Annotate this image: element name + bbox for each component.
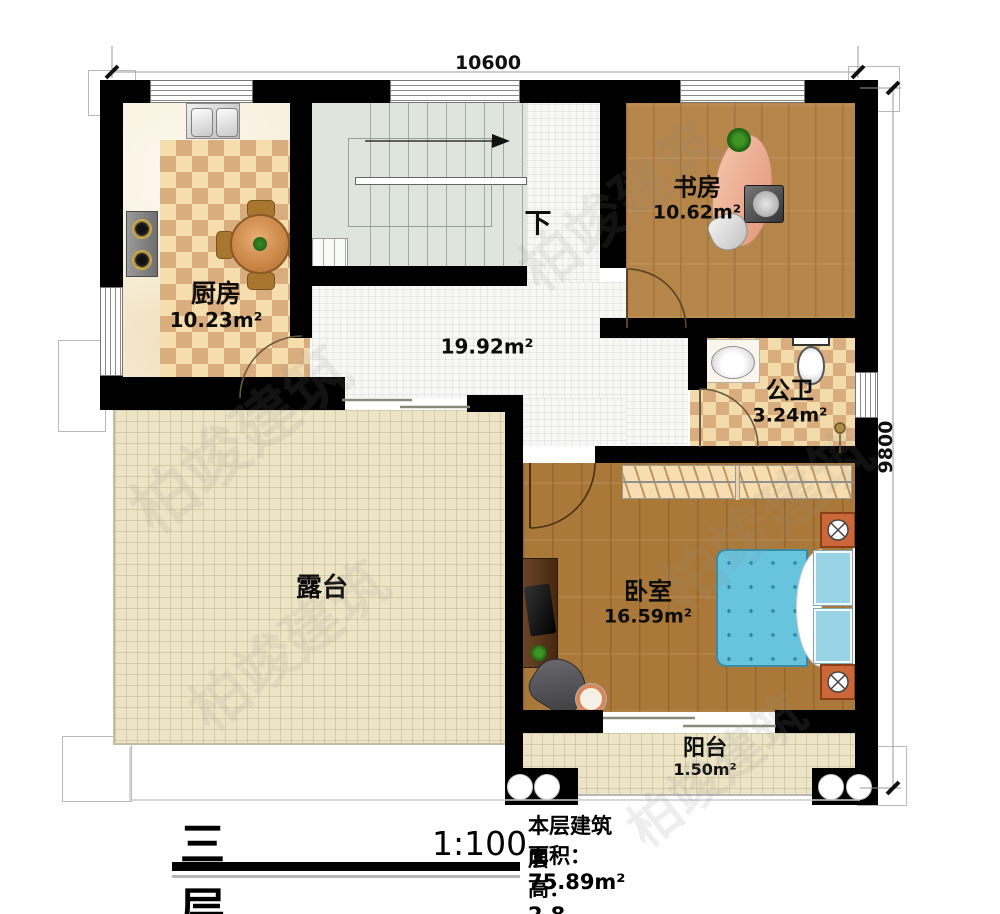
column-icon	[846, 774, 872, 800]
room-area: 16.59m²	[604, 606, 692, 628]
kitchen-label: 厨房 10.23m²	[170, 280, 263, 332]
hall-area-label: 19.92m²	[441, 336, 534, 359]
plant-icon	[253, 237, 267, 251]
burner	[132, 250, 152, 270]
stove-icon	[126, 211, 158, 277]
wall	[100, 80, 123, 287]
pillow	[814, 551, 852, 605]
sink-basin	[191, 108, 213, 137]
bathroom-sink-icon	[702, 339, 760, 383]
wall	[505, 710, 603, 733]
mattress	[716, 549, 808, 667]
dimension-ext-box	[62, 736, 132, 802]
room-area: 10.23m²	[170, 309, 263, 332]
kitchen-sink-icon	[186, 103, 240, 139]
table-top	[230, 214, 290, 274]
burner	[132, 219, 152, 239]
wall	[600, 80, 626, 268]
nightstand-icon	[820, 512, 856, 548]
monitor-icon	[524, 583, 557, 636]
monitor-screen	[753, 191, 779, 217]
plant-icon	[531, 645, 547, 661]
column-icon	[507, 774, 533, 800]
study-label: 书房 10.62m²	[653, 174, 741, 223]
balcony-label: 阳台 1.50m²	[673, 736, 736, 780]
stair-down-label: 下	[525, 208, 552, 239]
room-name: 卧室	[624, 577, 672, 605]
room-area: 19.92m²	[441, 335, 534, 359]
wall	[600, 318, 878, 338]
hall-floor	[527, 97, 600, 290]
room-name: 露台	[296, 573, 348, 603]
sink-basin	[216, 108, 238, 137]
window-icon	[390, 80, 520, 103]
wall	[312, 266, 527, 286]
wall	[775, 710, 878, 733]
room-area: 3.24m²	[753, 405, 828, 427]
stair-first-steps	[312, 238, 348, 267]
room-name: 书房	[673, 173, 721, 201]
column-icon	[818, 774, 844, 800]
dim-top-value: 10600	[455, 52, 521, 74]
nightstand-icon	[820, 664, 856, 700]
wardrobe-divider	[735, 466, 740, 500]
bedroom-label: 卧室 16.59m²	[604, 578, 692, 627]
room-name: 厨房	[191, 279, 241, 308]
terrace-label: 露台	[296, 574, 348, 604]
dim-right-value: 9800	[875, 421, 897, 474]
dimension-ext-box	[58, 340, 106, 432]
wall	[505, 412, 523, 805]
room-name: 阳台	[683, 736, 727, 761]
bed-icon	[716, 547, 858, 669]
wall	[467, 395, 523, 412]
wall	[290, 80, 312, 338]
floor-plan-page: 厨房 10.23m² 书房 10.62m² 公卫 3.24m² 卧室 16.59…	[0, 0, 1000, 914]
plant-icon	[727, 128, 751, 152]
wall	[595, 446, 878, 463]
plan-title: 三层平面图	[180, 808, 226, 914]
room-area: 1.50m²	[673, 761, 736, 779]
window-icon	[100, 287, 123, 376]
wardrobe-icon	[622, 465, 852, 499]
room-area: 10.62m²	[653, 202, 741, 224]
room-name: 公卫	[766, 376, 814, 404]
plan-scale: 1:100	[432, 824, 527, 863]
title-underline	[172, 862, 520, 871]
window-icon	[680, 80, 805, 103]
stair-rail	[355, 177, 527, 185]
title-underline-shadow	[172, 875, 520, 878]
column-icon	[534, 774, 560, 800]
hall-floor	[626, 338, 688, 446]
pillow	[814, 609, 852, 663]
wall	[100, 377, 345, 410]
window-icon	[855, 372, 878, 418]
wall	[688, 337, 707, 390]
window-icon	[150, 80, 253, 103]
monitor-icon	[744, 185, 784, 223]
floor-height-line: 层高：2.8米	[528, 843, 570, 914]
down-text: 下	[525, 208, 552, 239]
bathroom-label: 公卫 3.24m²	[753, 377, 828, 426]
basin	[711, 346, 755, 379]
hall-floor	[523, 398, 626, 446]
bedroom-desk-icon	[522, 558, 558, 668]
